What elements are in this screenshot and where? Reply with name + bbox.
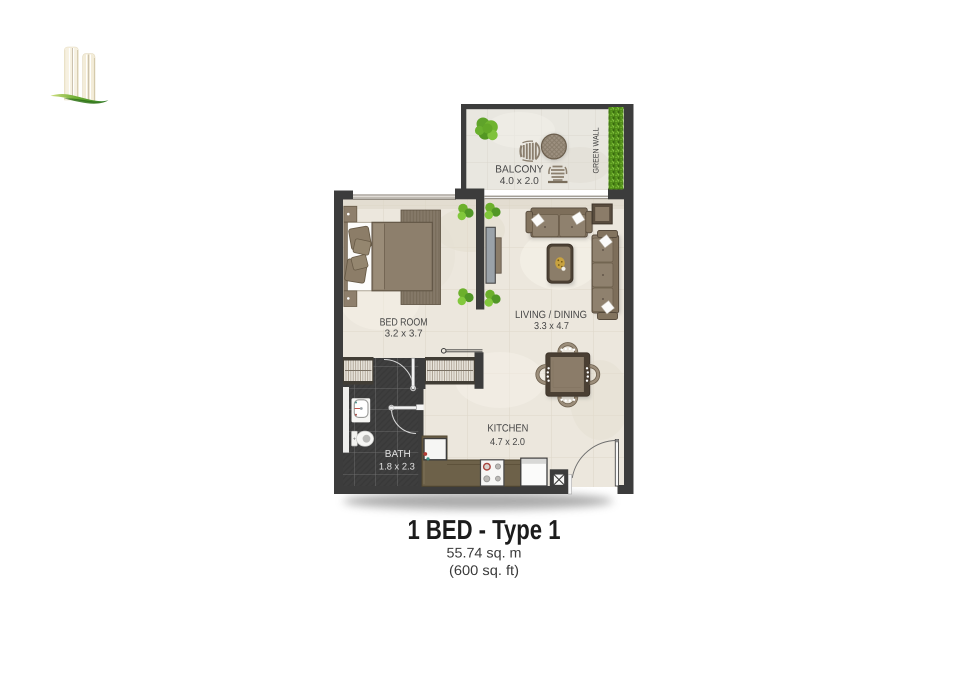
svg-text:BATH: BATH	[385, 449, 411, 460]
svg-text:1.8 x 2.3: 1.8 x 2.3	[379, 462, 415, 473]
svg-text:4.0 x 2.0: 4.0 x 2.0	[500, 176, 539, 187]
svg-text:55.74 sq. m: 55.74 sq. m	[447, 545, 522, 561]
svg-text:1 BED - Type 1: 1 BED - Type 1	[408, 514, 561, 545]
svg-text:(600 sq. ft): (600 sq. ft)	[449, 562, 519, 578]
svg-text:3.2 x 3.7: 3.2 x 3.7	[385, 328, 423, 339]
svg-text:LIVING / DINING: LIVING / DINING	[515, 309, 587, 321]
svg-text:BALCONY: BALCONY	[495, 164, 543, 176]
svg-text:4.7 x 2.0: 4.7 x 2.0	[490, 437, 525, 448]
svg-text:GREEN WALL: GREEN WALL	[592, 127, 601, 173]
svg-text:3.3 x 4.7: 3.3 x 4.7	[534, 321, 569, 332]
svg-text:KITCHEN: KITCHEN	[487, 423, 528, 435]
svg-text:BED ROOM: BED ROOM	[380, 317, 428, 329]
